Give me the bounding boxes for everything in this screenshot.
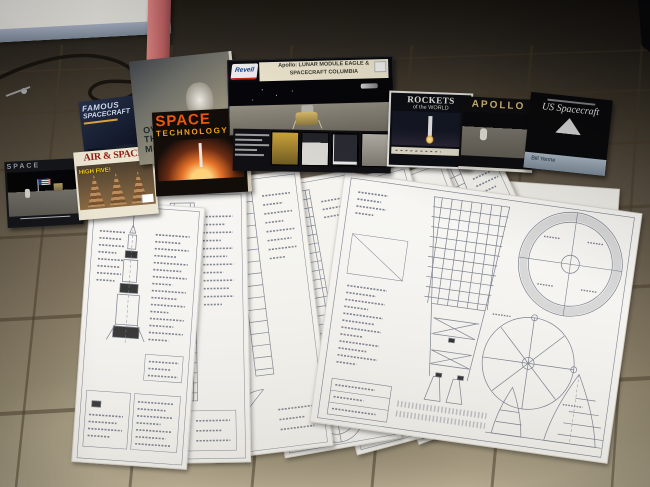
engine-nozzle-art [107,172,127,205]
blueprint-sheet-8 [310,172,642,463]
csm-columbia-art [361,84,378,89]
side-panel-fine-print [235,131,270,170]
rocket-art [428,116,433,136]
side-panel-photo [361,133,390,167]
photo-space-collection: SPACE FAMOUS SPACECRAFT AIR & SPACE HIGH… [0,0,650,487]
revell-logo: Revell [230,63,258,80]
rocket-art [199,143,203,167]
engine-nozzle-photo: HIGH FIVE! [76,160,156,210]
moonwalk-photo [461,111,533,159]
book-title: APOLLO [463,98,533,113]
astronaut-figure [25,189,30,198]
cover-bottom-band [391,147,467,157]
revell-kit-box-lid: Revell Apollo: LUNAR MODULE EAGLE & SPAC… [227,56,395,136]
stars [262,89,263,90]
lunar-module-figure [54,183,63,191]
moon-landing-photo [7,169,81,217]
author-name: Bill Yenne [524,152,606,170]
us-flag [38,179,50,186]
scale-badge [374,61,386,72]
caption-line [20,216,70,220]
barcode [141,194,154,203]
lm-descent-stage [295,111,317,125]
side-panel-photo [271,131,300,165]
side-panel-photo [331,132,360,166]
side-panel-photo [301,132,330,166]
blueprint-sheet-1 [72,200,205,469]
astronaut-figure [480,128,488,140]
launch-photo [156,137,244,181]
engine-nozzle-art [85,174,105,207]
flame-art [426,135,434,144]
spacecraft-art [551,116,586,135]
lunar-module-figure [510,128,520,138]
moon-landing-booklet: SPACE [4,158,83,228]
book-us-spacecraft: US Spacecraft Bill Yenne [523,92,612,176]
cover-line: HIGH FIVE! [79,167,111,176]
night-launch-photo [391,111,468,148]
lunar-scene-art [229,78,394,135]
revell-kit-box-side-panel [233,129,392,174]
